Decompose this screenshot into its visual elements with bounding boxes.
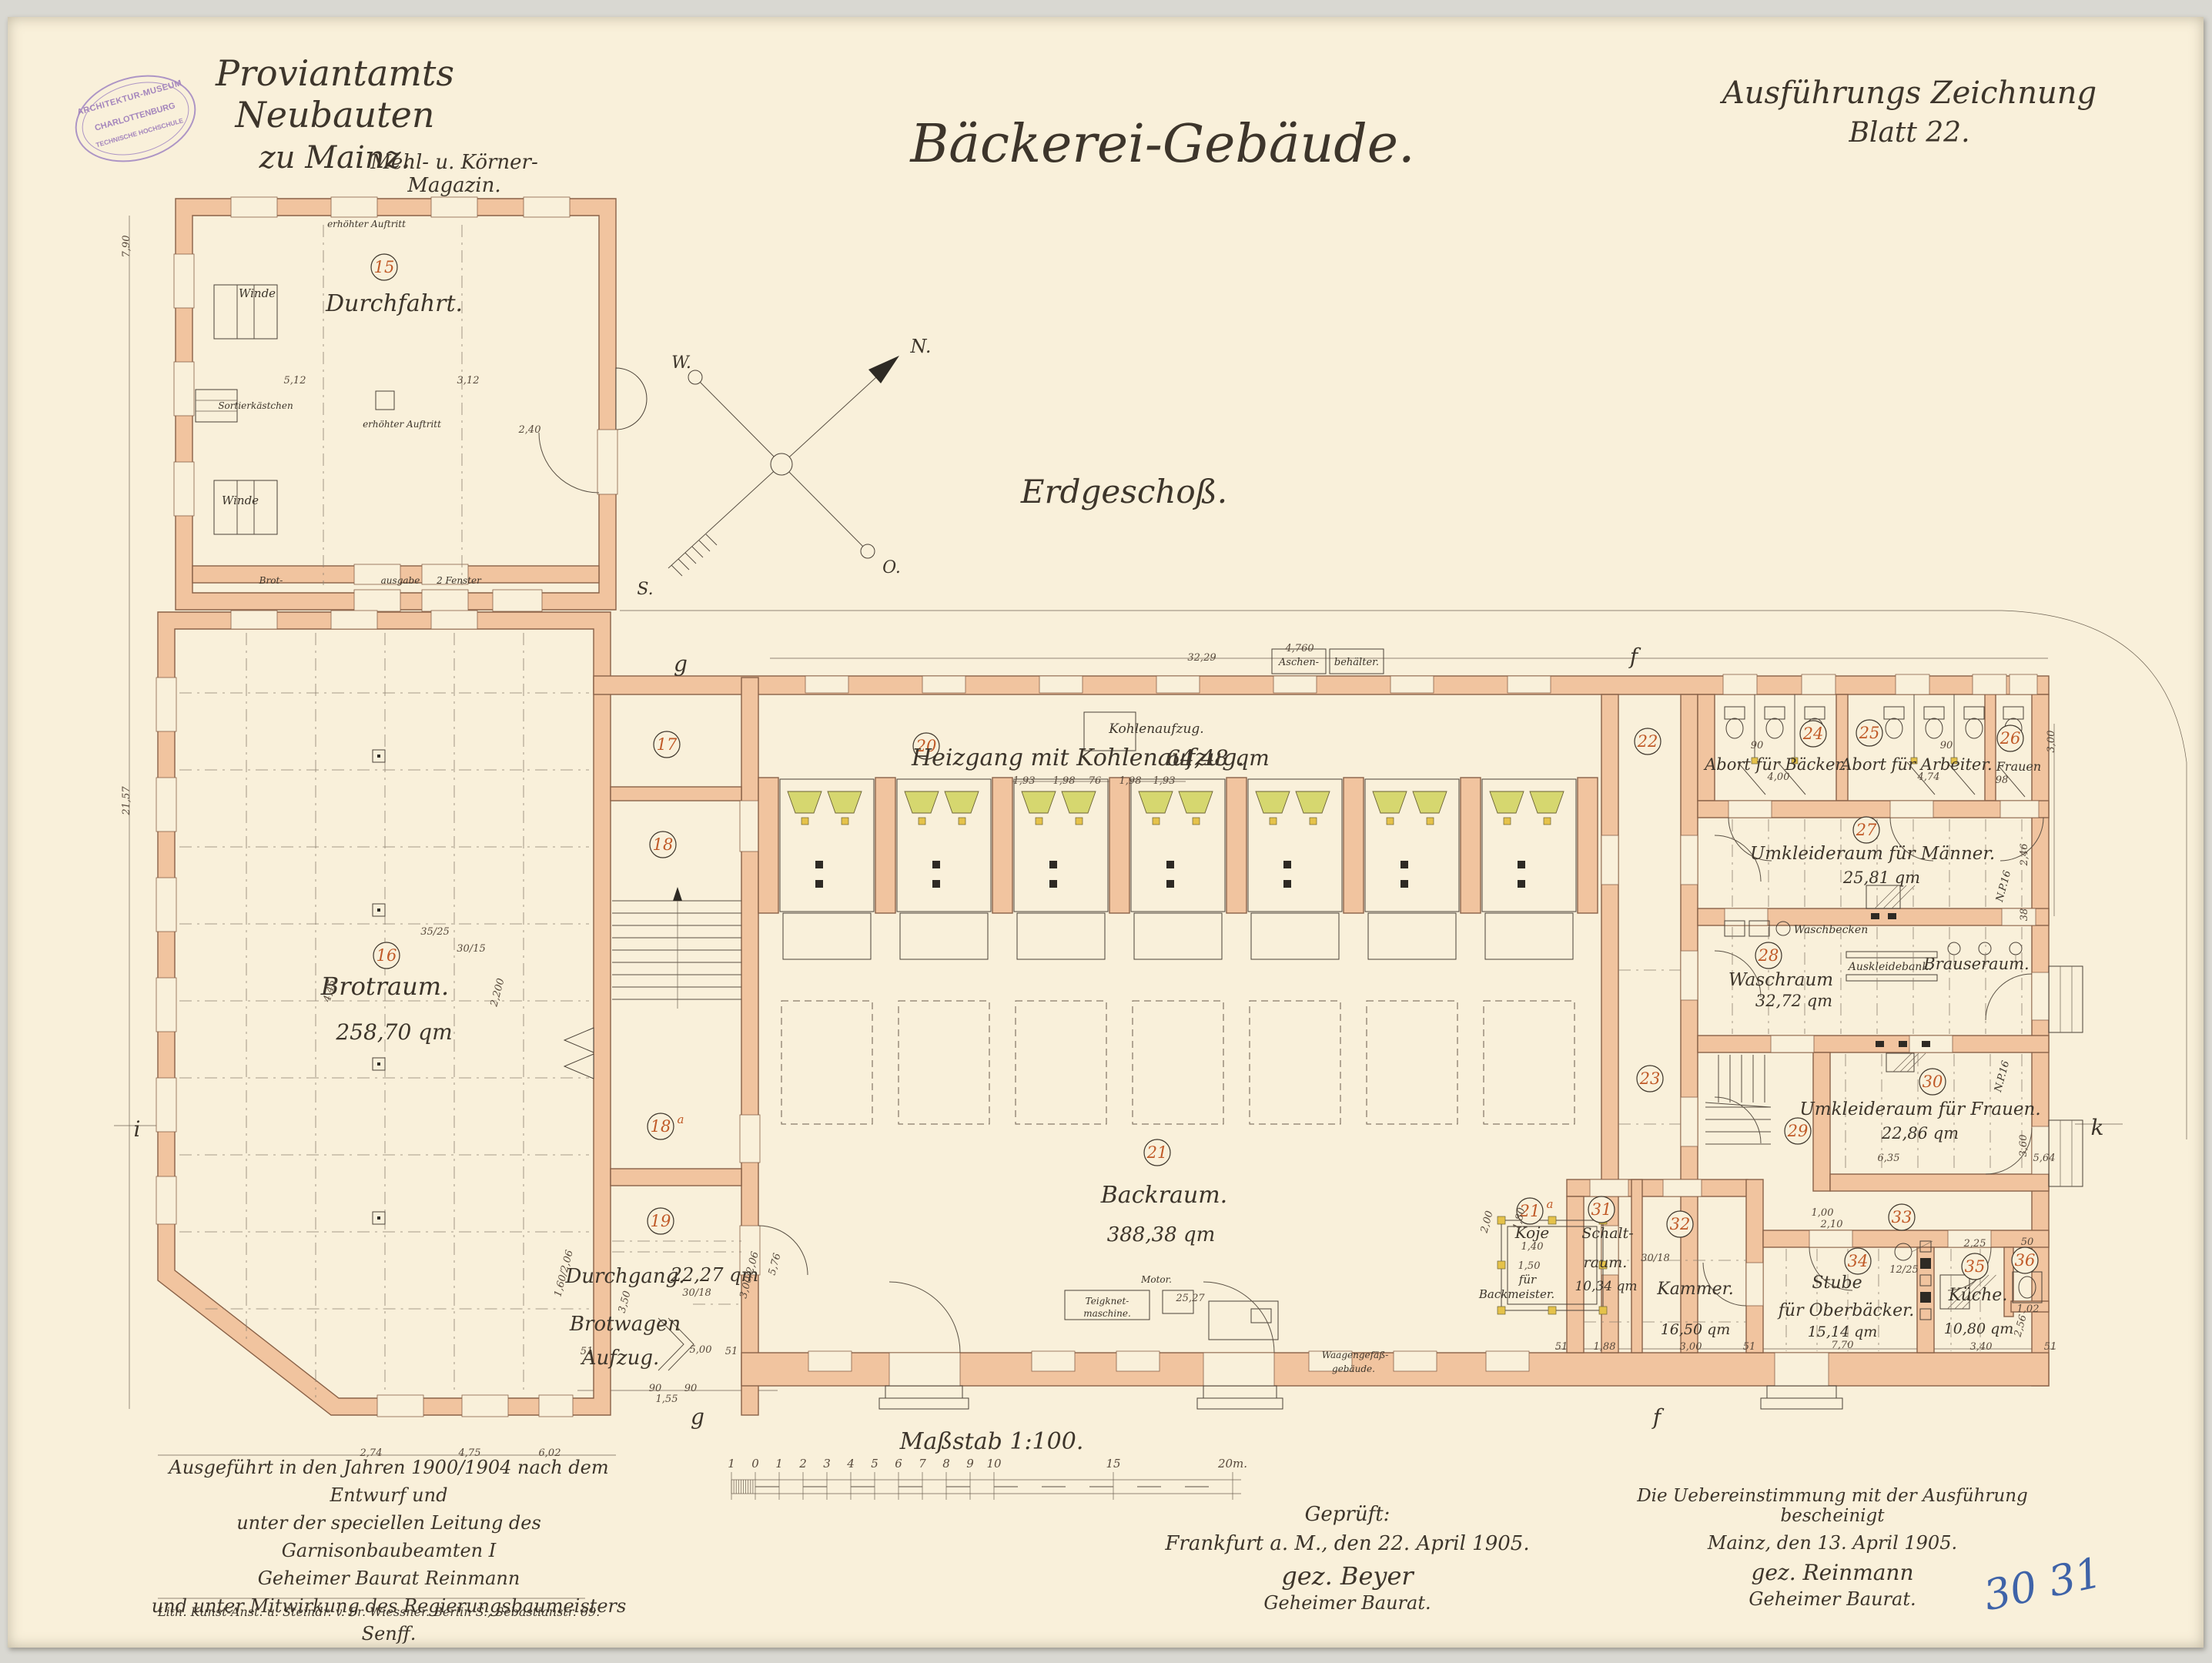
- room-label: gebäude.: [1332, 1364, 1375, 1374]
- dimension-label: 1,55: [656, 1394, 678, 1405]
- room-label: ausgabe: [381, 575, 420, 586]
- compass-north-label: N.: [909, 336, 931, 357]
- scale-tick-label: 15: [1106, 1457, 1120, 1471]
- scale-tick-label: 7: [919, 1457, 926, 1471]
- dimension-label: 51: [725, 1346, 738, 1357]
- room-number-suffix: a: [678, 1113, 684, 1126]
- dimension-label: 1,98: [1119, 775, 1142, 787]
- dimension-label: 25,27: [1175, 1293, 1205, 1304]
- scale-bar: Maßstab 1:100.10123456789101520m.: [728, 1428, 1247, 1500]
- room-label: Waschraum: [1728, 970, 1833, 990]
- room-label: Umkleideraum für Männer.: [1750, 844, 1995, 864]
- room-label: Brotraum.: [320, 972, 449, 1001]
- dimension-label: 2,40: [518, 424, 541, 436]
- dimension-label: 50: [2021, 1236, 2034, 1248]
- main-title: Bäckerei-Gebäude.: [862, 114, 1463, 175]
- execution-note-line1: Ausgeführt in den Jahren 1900/1904 nach …: [139, 1454, 639, 1509]
- room-label: Sortierkästchen: [218, 400, 293, 411]
- dimension-label: 4,00: [1767, 771, 1790, 783]
- drawing-sheet: N.W.O.S. Maßstab 1:100.10123456789101520…: [0, 0, 2212, 1663]
- room-number-circle: 18: [650, 831, 676, 858]
- execution-note-line2: unter der speciellen Leitung des Garniso…: [139, 1509, 639, 1564]
- room-number-circle: 17: [654, 731, 680, 758]
- room-label: Brot-: [259, 575, 283, 586]
- room-number-circle: 26: [1997, 725, 2023, 751]
- dimension-label: 51: [2044, 1341, 2057, 1353]
- dimension-label: 3,40: [1970, 1341, 1993, 1353]
- scale-tick-label: 20m.: [1217, 1457, 1247, 1471]
- room-number-circle: 29: [1785, 1118, 1811, 1144]
- room-label: Umkleideraum für Frauen.: [1799, 1099, 2040, 1119]
- room-label: Durchfahrt.: [325, 290, 463, 317]
- dimension-label: 21,57: [121, 786, 132, 816]
- section-letter: f: [1628, 644, 1641, 669]
- scale-tick-label: 1: [775, 1457, 783, 1471]
- room-label: Winde: [239, 286, 276, 300]
- scale-tick-label: 9: [966, 1457, 974, 1471]
- room-number: 17: [657, 735, 678, 754]
- room-label: Winde: [222, 494, 259, 507]
- room-label: Brotwagen: [569, 1313, 681, 1336]
- scale-tick-label: 0: [751, 1457, 759, 1471]
- dimension-label: 2,46: [2019, 844, 2030, 867]
- room-label: 22,86 qm: [1881, 1124, 1959, 1143]
- dimension-label: 35/25: [420, 926, 449, 938]
- room-number-circle: 24: [1800, 721, 1826, 747]
- dimension-label: 1,93: [1153, 775, 1176, 787]
- sheet-title-block: Ausführungs Zeichnung Blatt 22.: [1709, 75, 2110, 149]
- room-number-circle: 22: [1635, 728, 1661, 755]
- room-number-circle: 31: [1588, 1196, 1615, 1223]
- dimension-label: 3,12: [457, 375, 480, 386]
- room-label: N.P.16: [1993, 1059, 2012, 1094]
- dimension-label: 2,00: [1478, 1210, 1495, 1235]
- room-number-circle: 19: [648, 1208, 674, 1234]
- room-label: Stube: [1812, 1273, 1862, 1293]
- section-letter: g: [674, 651, 688, 677]
- room-number-circle: 32: [1667, 1211, 1693, 1237]
- room-number-circle: 21: [1144, 1139, 1170, 1166]
- room-number-circle: 18a: [648, 1113, 684, 1139]
- dimension-label: 90: [1940, 740, 1953, 751]
- room-label: Backmeister.: [1478, 1287, 1554, 1301]
- scale-tick-label: 5: [871, 1457, 878, 1471]
- room-label: 10,34 qm: [1575, 1279, 1637, 1294]
- room-label: für: [1518, 1273, 1537, 1287]
- scale-tick-label: 8: [942, 1457, 950, 1471]
- dimension-label: 4,74: [1917, 771, 1940, 783]
- compass-east-label: O.: [882, 558, 901, 577]
- approval-signature: gez. Beyer: [1155, 1561, 1540, 1591]
- room-number: 16: [376, 946, 397, 965]
- sheet-number: Blatt 22.: [1709, 117, 2110, 149]
- bay-window-apse: [616, 368, 647, 430]
- room-label: Motor.: [1140, 1274, 1172, 1285]
- room-number: 33: [1892, 1208, 1912, 1226]
- execution-note-line3: Geheimer Baurat Reinmann: [139, 1564, 639, 1592]
- dimension-label: 51: [581, 1346, 594, 1357]
- room-label: Schalt-: [1581, 1225, 1633, 1242]
- scale-tick-label: 10: [986, 1457, 1002, 1471]
- room-number-circle: 16: [373, 942, 400, 969]
- room-number-circle: 34: [1845, 1248, 1871, 1274]
- room-number: 19: [651, 1212, 671, 1230]
- dimension-label: 2,56: [2012, 1313, 2029, 1339]
- room-label: Waagengefäß-: [1322, 1350, 1389, 1360]
- room-number: 35: [1965, 1257, 1986, 1276]
- room-number: 24: [1802, 724, 1824, 743]
- room-label: raum.: [1584, 1254, 1628, 1271]
- room-number: 32: [1670, 1215, 1691, 1233]
- dimension-label: 3,00: [1680, 1341, 1702, 1353]
- room-label: 2 Fenster: [436, 575, 482, 586]
- dimension-label: 6,35: [1878, 1153, 1900, 1164]
- room-label: Kohlenaufzug.: [1108, 721, 1203, 737]
- room-number: 22: [1637, 732, 1658, 751]
- room-number-circle: 15: [371, 254, 397, 280]
- dimension-label: 5,00: [690, 1344, 712, 1356]
- room-number: 25: [1859, 724, 1880, 742]
- scale-tick-label: 2: [798, 1457, 807, 1471]
- dimension-label: 90: [1751, 740, 1764, 751]
- execution-note-line4: und unter Mitwirkung des Regierungsbaume…: [139, 1592, 639, 1648]
- room-number: 26: [2000, 729, 2021, 748]
- dimension-label: 7,90: [121, 236, 132, 258]
- lithographer-imprint: Lith. Kunst-Anst. u. Steindr. v. Fr. Wie…: [158, 1604, 697, 1619]
- dimension-label: 98: [1996, 775, 2009, 786]
- room-label: 388,38 qm: [1107, 1223, 1216, 1246]
- approval-line2: Frankfurt a. M., den 22. April 1905.: [1155, 1532, 1540, 1555]
- scale-tick-label: 6: [895, 1457, 902, 1471]
- room-label: Brauseraum.: [1923, 955, 2029, 973]
- room-number-circle: 28: [1755, 942, 1782, 969]
- section-letter: f: [1651, 1404, 1665, 1430]
- room-label: erhöhter Auftritt: [363, 419, 441, 430]
- section-letter: g: [691, 1404, 704, 1430]
- dimension-label: 12/25: [1889, 1264, 1918, 1276]
- compass-rose: N.W.O.S.: [637, 336, 931, 599]
- drawing-type: Ausführungs Zeichnung: [1709, 75, 2110, 111]
- dimension-label: 1,88: [1594, 1341, 1616, 1353]
- room-label: Durchgang.: [564, 1265, 684, 1288]
- room-label: erhöhter Auftritt: [327, 219, 406, 229]
- dimension-label: 1,98: [1053, 775, 1076, 787]
- room-number: 27: [1856, 821, 1877, 839]
- scale-tick-label: 1: [728, 1457, 735, 1471]
- attestation-line1: Die Uebereinstimmung mit der Ausführung …: [1609, 1486, 2056, 1526]
- dimension-label: 2,10: [1820, 1219, 1843, 1230]
- room-number-circle: 36: [2012, 1247, 2038, 1273]
- room-number: 36: [2015, 1251, 2036, 1270]
- wing-title: Mehl- u. Körner-Magazin.: [331, 151, 577, 197]
- dimension-label: 1,40: [1521, 1241, 1544, 1253]
- scale-title: Maßstab 1:100.: [899, 1428, 1084, 1455]
- room-number: 28: [1758, 946, 1779, 965]
- dimension-label: 1,00: [1812, 1207, 1834, 1219]
- room-number: 15: [374, 258, 395, 276]
- room-number-circle: 35: [1962, 1253, 1988, 1280]
- room-number: 30: [1923, 1072, 1943, 1091]
- dimension-label: 5,76: [767, 1252, 784, 1277]
- dimension-label: 90: [684, 1383, 698, 1394]
- room-label: 16,50 qm: [1661, 1321, 1731, 1338]
- room-number: 31: [1591, 1200, 1612, 1219]
- dimension-label: 32,29: [1187, 652, 1216, 664]
- dimension-label: 90: [649, 1383, 662, 1394]
- room-number: 29: [1787, 1122, 1809, 1140]
- section-letter: k: [2091, 1115, 2104, 1140]
- dimension-label: 1,02: [2017, 1303, 2040, 1315]
- room-label: 15,14 qm: [1808, 1323, 1878, 1340]
- room-label: Aschen-: [1278, 657, 1319, 668]
- room-label: behälter.: [1334, 657, 1379, 668]
- scale-tick-label: 3: [823, 1457, 831, 1471]
- room-number: 23: [1639, 1069, 1661, 1088]
- room-label: Auskleidebank.: [1847, 961, 1933, 973]
- room-number-circle: 25: [1856, 720, 1882, 746]
- dimension-label: 7,70: [1832, 1340, 1854, 1351]
- approval-block: Geprüft: Frankfurt a. M., den 22. April …: [1155, 1503, 1540, 1614]
- room-number-circle: 27: [1853, 817, 1879, 843]
- room-label: 258,70 qm: [335, 1019, 452, 1045]
- room-label: 10,80 qm: [1944, 1320, 2014, 1337]
- room-label: 64,48 qm: [1166, 745, 1270, 771]
- project-title-line1: Proviantamts Neubauten: [154, 52, 516, 136]
- dimension-label: 2,200: [488, 977, 507, 1009]
- dimension-label: 5,12: [284, 375, 306, 386]
- room-label: 32,72 qm: [1755, 992, 1832, 1010]
- compass-west-label: W.: [671, 353, 691, 373]
- section-letter: i: [134, 1116, 141, 1142]
- room-label: maschine.: [1083, 1308, 1131, 1319]
- dimension-label: 4,760: [1284, 643, 1313, 654]
- room-label: für Oberbäcker.: [1777, 1301, 1914, 1320]
- room-number-circle: 33: [1889, 1204, 1915, 1230]
- scale-tick-label: 4: [846, 1457, 855, 1471]
- room-label: Frauen: [1996, 759, 2041, 774]
- attestation-line2: Mainz, den 13. April 1905.: [1609, 1532, 2056, 1554]
- room-number: 18: [653, 835, 674, 854]
- approval-line1: Geprüft:: [1155, 1503, 1540, 1526]
- room-number: 18: [651, 1117, 671, 1136]
- dimension-label: 30/18: [1641, 1253, 1669, 1264]
- room-label: Kammer.: [1656, 1280, 1733, 1299]
- room-number-circle: 23: [1637, 1066, 1663, 1092]
- dimension-label: 30/15: [457, 943, 485, 955]
- dimension-label: 1,93: [1013, 775, 1036, 787]
- dimension-label: 38: [2019, 908, 2030, 922]
- dimension-label: 51: [1555, 1341, 1568, 1353]
- room-label: 25,81 qm: [1842, 868, 1920, 887]
- room-number: 21: [1146, 1143, 1168, 1162]
- dimension-label: 1,50: [1518, 1260, 1541, 1272]
- room-label: Backraum.: [1100, 1182, 1227, 1209]
- room-label: Abort für Arbeiter.: [1839, 755, 1992, 774]
- room-number-suffix: a: [1547, 1197, 1554, 1211]
- dimension-label: 2,25: [1963, 1238, 1986, 1250]
- dimension-label: 76: [1089, 775, 1102, 787]
- dimension-label: 30/18: [682, 1287, 711, 1299]
- compass-south-label: S.: [637, 580, 653, 599]
- approval-title: Geheimer Baurat.: [1155, 1592, 1540, 1614]
- dimension-label: 3,60: [2018, 1135, 2030, 1157]
- room-label: Küche.: [1948, 1286, 2008, 1305]
- dimension-label: 5,64: [2033, 1153, 2056, 1164]
- room-label: N.P.16: [1994, 869, 2013, 904]
- dimension-label: 3,00: [2046, 731, 2057, 753]
- dimension-label: 51: [1743, 1341, 1756, 1353]
- room-label: Teigknet-: [1086, 1296, 1129, 1307]
- floor-plan-drawing: N.W.O.S. Maßstab 1:100.10123456789101520…: [0, 0, 2212, 1663]
- floor-label: Erdgeschoß.: [986, 473, 1263, 510]
- room-label: Waschbecken: [1794, 924, 1868, 936]
- room-number: 34: [1848, 1252, 1869, 1270]
- room-number-circle: 30: [1919, 1069, 1946, 1095]
- dimension-label: 3,50: [617, 1290, 634, 1314]
